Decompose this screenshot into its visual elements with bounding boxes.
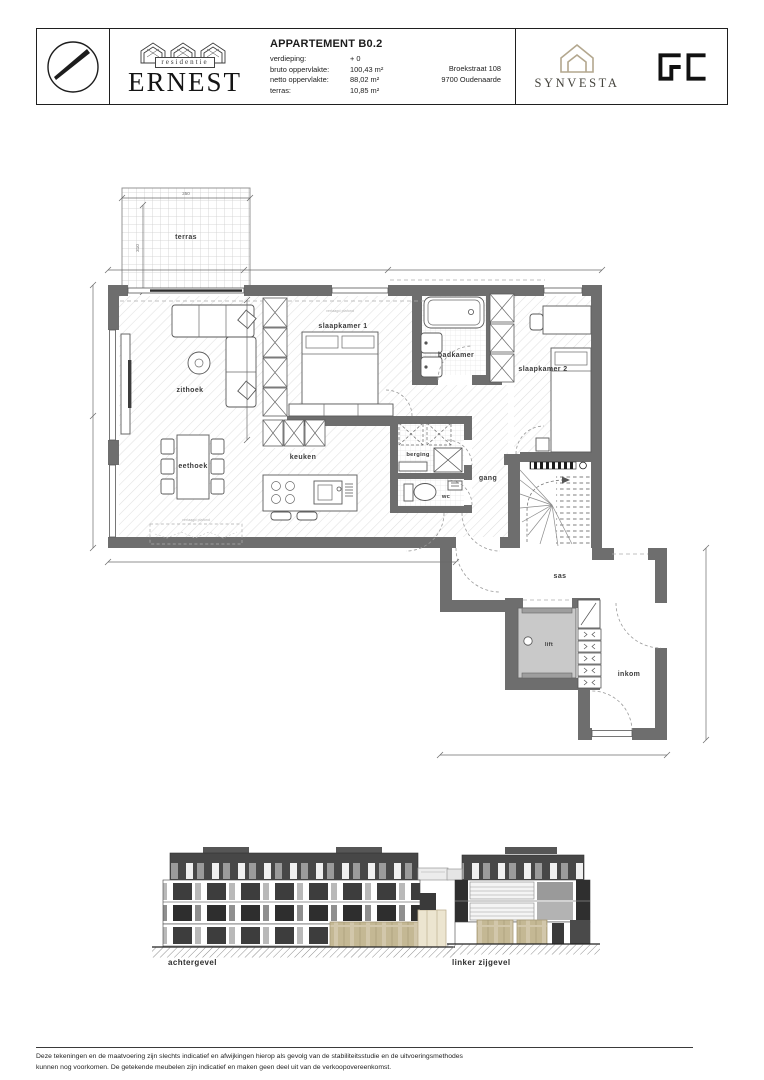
room-label-zithoek: zithoek (177, 387, 204, 394)
synvesta-wordmark: SYNVESTA (534, 76, 619, 91)
gc-brand (638, 50, 727, 84)
field-label: terras: (270, 86, 350, 97)
room-label-keuken: keuken (290, 454, 317, 461)
compass-icon (44, 38, 102, 96)
disclaimer-line1: Deze tekeningen en de maatvoering zijn s… (36, 1052, 693, 1063)
room-label-eethoek: eethoek (178, 463, 207, 470)
project-address: Broekstraat 108 9700 Oudenaarde (395, 29, 515, 104)
side-table (188, 352, 210, 374)
header-middle: residentie ERNEST APPARTEMENT B0.2 verdi… (110, 29, 515, 104)
north-arrow-cell (37, 29, 110, 104)
entrance-door (592, 731, 632, 737)
mailboxes (578, 629, 601, 688)
floor-plan: terras 350 310 (0, 150, 764, 810)
closet-bedroom1 (263, 298, 287, 416)
sliding-door-panel (150, 289, 242, 291)
room-label-slaapkamer1: slaapkamer 1 (318, 323, 367, 330)
room-label-terras: terras (175, 234, 197, 241)
tv-sideboard (121, 334, 131, 434)
gc-logo-icon (655, 50, 711, 84)
rear-elevation: achtergevel (152, 847, 455, 967)
room-label-lift: lift (545, 642, 553, 648)
disclaimer-line2: kunnen nog voorkomen. De getekende meube… (36, 1063, 693, 1074)
ceiling-note-1: verlaagd plafond (326, 309, 354, 313)
bed-1 (289, 332, 393, 416)
room-label-wc: wc (441, 494, 451, 500)
left-elevation-label: linker zijgevel (452, 958, 510, 967)
room-label-inkom: inkom (618, 671, 641, 678)
closet-bedroom2 (490, 294, 514, 382)
lift-shaft-box (578, 600, 600, 628)
address-line1: Broekstraat 108 (395, 63, 501, 74)
synvesta-brand: SYNVESTA (516, 43, 638, 91)
apartment-info: APPARTEMENT B0.2 verdieping: + 0 bruto o… (260, 29, 395, 104)
elevations: achtergevel linker zijgevel (0, 830, 764, 1000)
staircase (520, 462, 591, 548)
ceiling-note-2: verlaagd plafond (182, 518, 210, 522)
room-label-sas: sas (554, 573, 567, 580)
north-needle-icon (54, 49, 90, 80)
info-row: netto oppervlakte: 88,02 m² (270, 75, 395, 86)
floorplan-sheet: { "header": { "title": "APPARTEMENT B0.2… (0, 0, 764, 1080)
title-block: residentie ERNEST APPARTEMENT B0.2 verdi… (36, 28, 728, 105)
left-elevation: linker zijgevel (447, 847, 600, 967)
field-label: verdieping: (270, 54, 350, 65)
field-value: 88,02 m² (350, 75, 379, 86)
residence-name: ERNEST (128, 69, 242, 96)
highlighted-unit-rear (330, 922, 418, 947)
room-label-berging: berging (406, 452, 430, 458)
disclaimer: Deze tekeningen en de maatvoering zijn s… (36, 1047, 693, 1073)
field-value: 10,85 m² (350, 86, 379, 97)
kitchen-tall-units (263, 420, 325, 446)
synvesta-house-icon (559, 43, 595, 74)
terrace: terras 350 310 (119, 188, 253, 295)
info-row: bruto oppervlakte: 100,43 m² (270, 65, 395, 76)
info-row: verdieping: + 0 (270, 54, 395, 65)
info-row: terras: 10,85 m² (270, 86, 395, 97)
apartment-title: APPARTEMENT B0.2 (270, 38, 395, 50)
room-label-slaapkamer2: slaapkamer 2 (518, 366, 567, 373)
rear-elevation-label: achtergevel (168, 958, 217, 967)
field-label: bruto oppervlakte: (270, 65, 350, 76)
room-label-badkamer: badkamer (438, 352, 474, 359)
field-value: 100,43 m² (350, 65, 383, 76)
highlighted-unit-left (477, 920, 513, 944)
room-label-gang: gang (479, 475, 497, 482)
terrace-width-dim: 350 (182, 191, 190, 196)
terrace-depth-dim: 310 (135, 244, 140, 252)
residence-logo: residentie ERNEST (110, 29, 260, 104)
field-label: netto oppervlakte: (270, 75, 350, 86)
field-value: + 0 (350, 54, 360, 65)
brand-cells: SYNVESTA (515, 29, 727, 104)
address-line2: 9700 Oudenaarde (395, 74, 501, 85)
